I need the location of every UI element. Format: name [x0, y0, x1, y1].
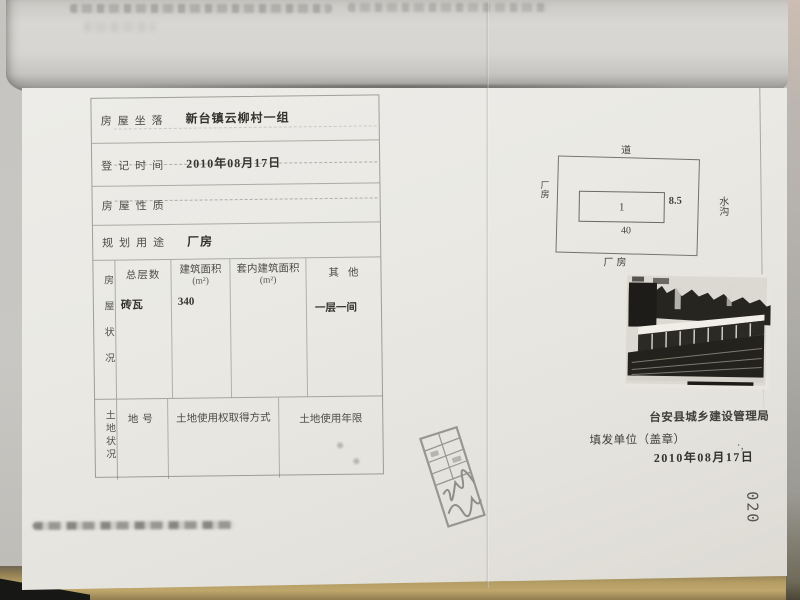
location-label: 房屋坐落 [101, 112, 169, 129]
site-plan-building-mark: 1 [619, 201, 625, 213]
issuer-seal-label: 填发单位（盖章） [589, 431, 685, 448]
cell-structure: 砖瓦 [121, 296, 143, 312]
page-number: 020 [745, 485, 762, 531]
site-plan-road-label: 道 [621, 141, 631, 156]
header-total-floors: 总层数 [115, 260, 170, 283]
cell-building-area: 340 [178, 296, 195, 308]
issuing-agency: 台安县城乡建设管理局 [649, 408, 769, 425]
form-row-location: 房屋坐落 新台镇云柳村一组 [91, 95, 379, 144]
ink-tick-mark: ·, [737, 438, 744, 453]
site-plan-width-dimension: 8.5 [669, 196, 682, 207]
land-section-side-label: 土地状况 [95, 400, 118, 480]
bleed-through-smudge [84, 22, 156, 32]
site-plan-building-outline: 1 [578, 191, 664, 223]
site-plan-left-label: 厂房 [538, 180, 551, 198]
registration-form-table: 房屋坐落 新台镇云柳村一组 登记时间 2010年08月17日 房屋性质 规划用途… [90, 94, 384, 478]
site-plan-right-label: 水沟 [715, 196, 730, 216]
header-inner-area-unit: (m²) [231, 275, 306, 286]
bleed-through-text [70, 4, 332, 13]
site-plan-bottom-label: 厂房 [603, 253, 629, 268]
faint-ink-mark [336, 441, 345, 450]
form-row-planned-use: 规划用途 厂房 [93, 222, 380, 261]
building-photo-image [621, 272, 771, 389]
building-condition-section: 房屋状况 总层数 砖瓦 建筑面积 (m²) 340 套内建筑面积 [93, 257, 382, 399]
header-other: 其他 [306, 257, 380, 280]
location-value: 新台镇云柳村一组 [186, 108, 290, 126]
faint-ink-mark [352, 457, 361, 466]
page-crease [486, 2, 489, 588]
header-land-right-method: 土地使用权取得方式 [168, 398, 278, 426]
pencil-smudge-line [33, 521, 235, 530]
header-land-use-term: 土地使用年限 [279, 396, 382, 426]
site-plan-length-dimension: 40 [621, 225, 631, 236]
planned-use-label: 规划用途 [102, 234, 170, 251]
header-inner-area: 套内建筑面积 [230, 258, 305, 276]
bleed-through-text [348, 3, 548, 12]
form-row-house-nature: 房屋性质 [92, 183, 379, 226]
planned-use-value: 厂房 [187, 232, 213, 249]
header-land-number: 地号 [117, 399, 167, 427]
ink-stamp [417, 424, 491, 533]
cell-other: 一层一间 [315, 300, 357, 316]
header-building-area: 建筑面积 [171, 259, 229, 277]
building-section-side-label: 房屋状况 [93, 261, 117, 399]
document-page: 房屋坐落 新台镇云柳村一组 登记时间 2010年08月17日 房屋性质 规划用途… [22, 88, 787, 590]
stamp-graphic [417, 424, 491, 533]
site-plan-diagram: 道 厂房 水沟 1 8.5 40 厂房 [538, 142, 748, 277]
building-photo [621, 272, 771, 389]
flipped-page-roll [6, 0, 788, 92]
land-condition-section: 土地状况 地号 土地使用权取得方式 土地使用年限 [95, 396, 383, 480]
header-building-area-unit: (m²) [172, 276, 230, 287]
scanned-document-photo: 房屋坐落 新台镇云柳村一组 登记时间 2010年08月17日 房屋性质 规划用途… [0, 0, 800, 600]
